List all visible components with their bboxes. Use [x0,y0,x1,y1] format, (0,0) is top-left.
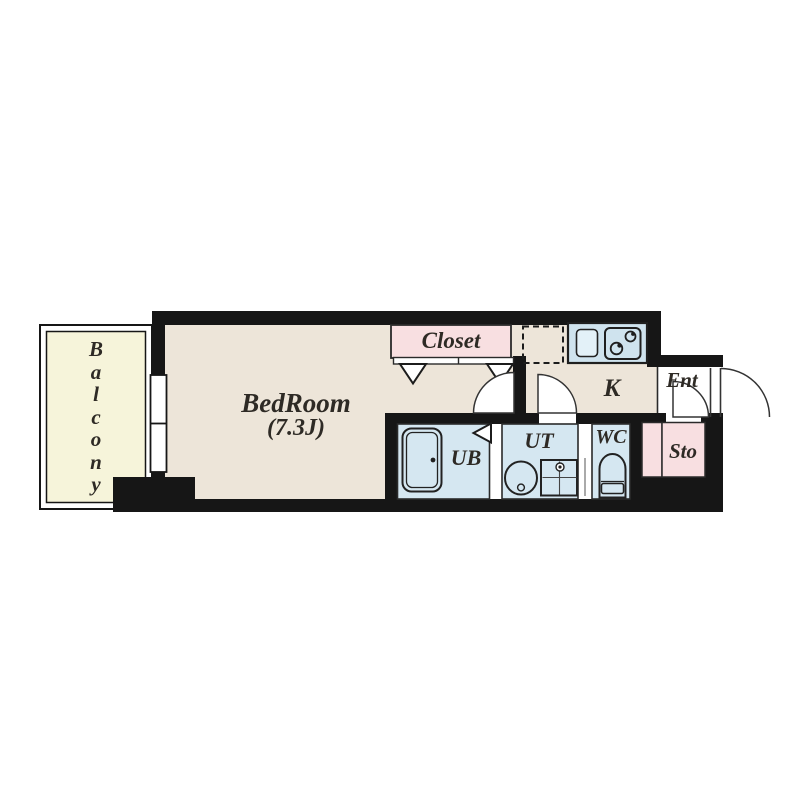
wall-kitchen-right [647,311,661,357]
floorplan-canvas: B a l c o n y BedRoom (7.3J) Closet K En… [0,0,800,800]
wall-left-upper [152,311,165,377]
front-door [711,368,770,417]
wall-entrance-top [647,355,723,367]
bedroom-size-label: (7.3J) [196,416,396,441]
wc-label: WC [586,427,636,448]
wall-corridor-1 [385,413,539,424]
wall-bottom-right-block [630,477,723,499]
front-door-swing-arc [721,369,770,418]
wall-stub-kitchen [513,356,526,413]
floorplan-drawing [0,0,800,800]
utility-door-opening [539,413,576,424]
closet-label: Closet [391,329,511,353]
kitchen-counter [568,323,647,363]
storage-label: Sto [653,440,713,462]
entrance-label: Ent [652,369,712,391]
balcony-label: B a l c o n y [76,338,116,496]
wall-bottom [113,499,723,512]
sink-icon [577,330,598,357]
stove-icon [605,328,641,359]
unit-bath-label: UB [441,446,491,469]
bedroom-window [151,375,167,472]
bedroom-label: BedRoom [196,389,396,417]
utility-label: UT [509,429,569,452]
kitchen-label: K [582,376,642,402]
